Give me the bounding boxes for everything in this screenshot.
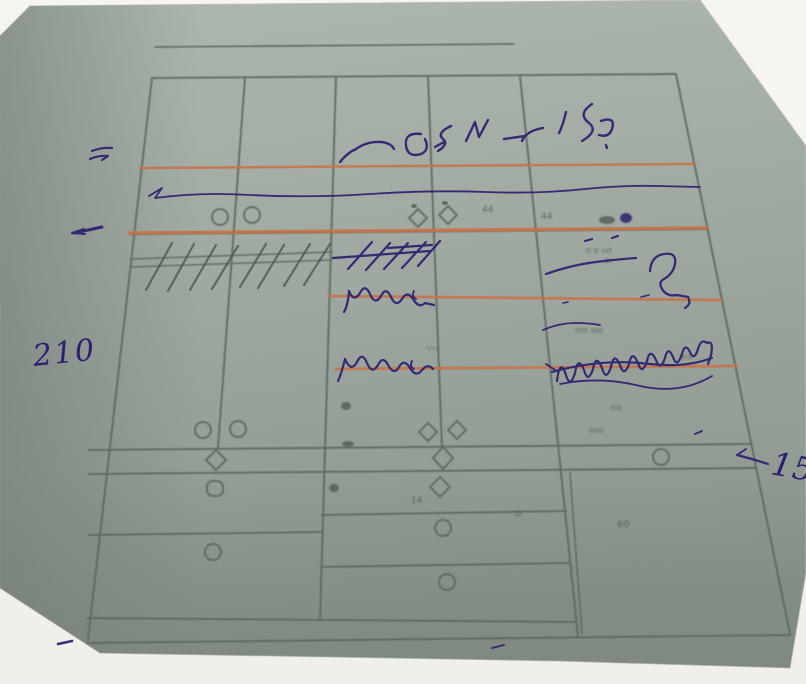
smudge-14: 14: [411, 496, 423, 506]
smudge-60: 60: [617, 519, 630, 530]
smudge-tiny: ררר: [426, 345, 438, 353]
stray-dash: [563, 302, 568, 303]
smudge-44a: 44: [482, 205, 494, 215]
paper-sheet: [0, 0, 806, 684]
ink-blob: [620, 213, 632, 223]
smudge-row1: זווו וו וו: [586, 246, 612, 256]
smudge-44b: 44: [541, 212, 553, 222]
smudge-dot: [442, 201, 448, 205]
smudge-row5: ווווו: [610, 403, 622, 413]
smudge-blob: [341, 402, 351, 410]
smudge-row6: וווווו: [589, 426, 604, 436]
smudge-dot: [411, 204, 417, 208]
smudge-row7: וב: [514, 509, 522, 519]
smudge-blob: [329, 484, 339, 492]
smudge-blob: [342, 441, 354, 447]
photo-canvas: 44 44 זווו וו וו וב ררר ווווו ווזוו בוצ …: [0, 0, 806, 684]
dimension-15: 15: [769, 444, 806, 489]
smudge-blob: [599, 216, 615, 224]
dimension-210: 210: [30, 333, 98, 375]
smudge-row3: ווווו ווזוו: [575, 326, 603, 336]
